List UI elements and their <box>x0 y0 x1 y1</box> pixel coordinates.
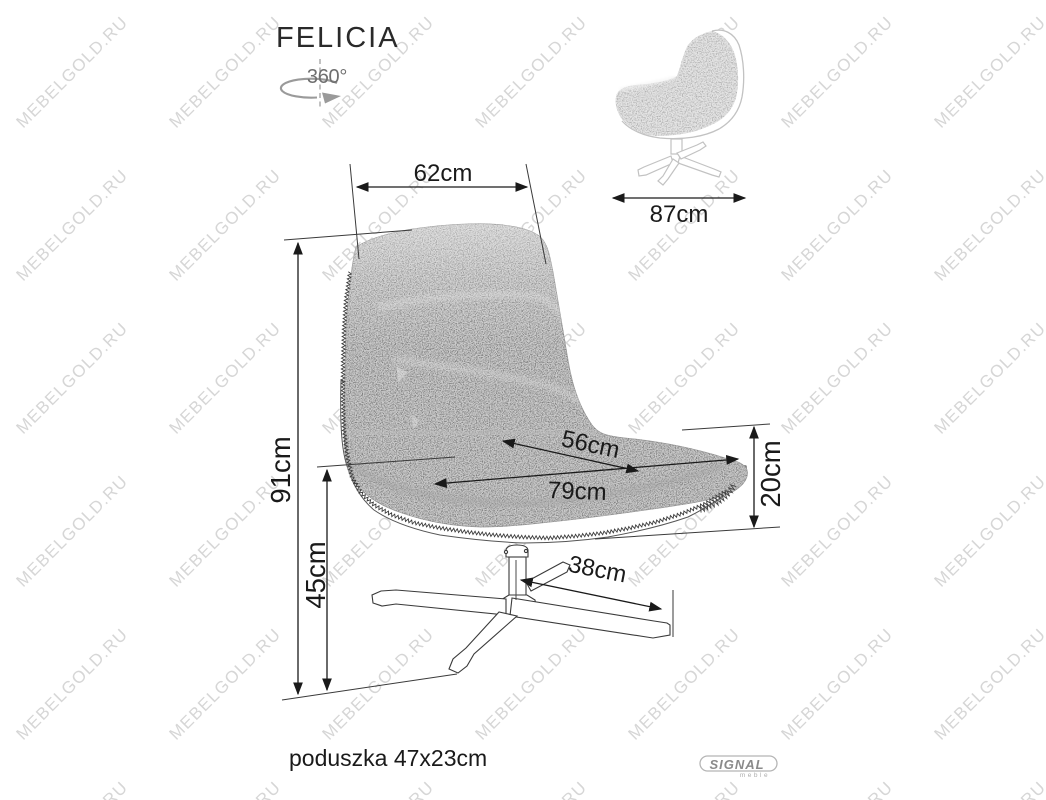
svg-text:79cm: 79cm <box>547 477 607 506</box>
svg-text:MEBELGOLD.RU: MEBELGOLD.RU <box>931 13 1046 132</box>
svg-text:45cm: 45cm <box>300 541 331 608</box>
svg-text:MEBELGOLD.RU: MEBELGOLD.RU <box>778 625 897 744</box>
svg-text:MEBELGOLD.RU: MEBELGOLD.RU <box>166 319 285 438</box>
svg-text:360°: 360° <box>307 66 347 88</box>
svg-text:MEBELGOLD.RU: MEBELGOLD.RU <box>472 13 591 132</box>
svg-text:MEBELGOLD.RU: MEBELGOLD.RU <box>778 472 897 591</box>
svg-text:MEBELGOLD.RU: MEBELGOLD.RU <box>778 319 897 438</box>
svg-text:meble: meble <box>740 772 770 779</box>
svg-text:MEBELGOLD.RU: MEBELGOLD.RU <box>778 778 897 800</box>
svg-text:MEBELGOLD.RU: MEBELGOLD.RU <box>625 319 744 438</box>
svg-text:MEBELGOLD.RU: MEBELGOLD.RU <box>13 319 132 438</box>
svg-text:MEBELGOLD.RU: MEBELGOLD.RU <box>166 13 285 132</box>
svg-text:38cm: 38cm <box>566 551 629 589</box>
svg-text:MEBELGOLD.RU: MEBELGOLD.RU <box>931 625 1046 744</box>
svg-text:MEBELGOLD.RU: MEBELGOLD.RU <box>778 13 897 132</box>
svg-text:MEBELGOLD.RU: MEBELGOLD.RU <box>931 472 1046 591</box>
svg-text:MEBELGOLD.RU: MEBELGOLD.RU <box>931 166 1046 285</box>
svg-text:91cm: 91cm <box>265 436 296 503</box>
svg-text:62cm: 62cm <box>414 160 473 187</box>
svg-text:MEBELGOLD.RU: MEBELGOLD.RU <box>625 625 744 744</box>
svg-text:MEBELGOLD.RU: MEBELGOLD.RU <box>13 166 132 285</box>
svg-text:FELICIA: FELICIA <box>276 22 400 54</box>
svg-text:MEBELGOLD.RU: MEBELGOLD.RU <box>166 778 285 800</box>
svg-text:MEBELGOLD.RU: MEBELGOLD.RU <box>13 625 132 744</box>
svg-text:MEBELGOLD.RU: MEBELGOLD.RU <box>166 625 285 744</box>
svg-text:MEBELGOLD.RU: MEBELGOLD.RU <box>13 13 132 132</box>
svg-text:MEBELGOLD.RU: MEBELGOLD.RU <box>472 625 591 744</box>
svg-text:MEBELGOLD.RU: MEBELGOLD.RU <box>931 319 1046 438</box>
svg-text:MEBELGOLD.RU: MEBELGOLD.RU <box>778 166 897 285</box>
svg-text:SIGNAL: SIGNAL <box>709 757 764 772</box>
svg-text:MEBELGOLD.RU: MEBELGOLD.RU <box>472 778 591 800</box>
svg-text:poduszka 47x23cm: poduszka 47x23cm <box>289 745 487 771</box>
svg-text:87cm: 87cm <box>650 201 709 228</box>
svg-text:MEBELGOLD.RU: MEBELGOLD.RU <box>13 472 132 591</box>
svg-text:20cm: 20cm <box>755 440 786 507</box>
svg-text:MEBELGOLD.RU: MEBELGOLD.RU <box>319 778 438 800</box>
svg-text:MEBELGOLD.RU: MEBELGOLD.RU <box>166 166 285 285</box>
svg-text:MEBELGOLD.RU: MEBELGOLD.RU <box>625 778 744 800</box>
svg-text:MEBELGOLD.RU: MEBELGOLD.RU <box>319 625 438 744</box>
svg-text:MEBELGOLD.RU: MEBELGOLD.RU <box>931 778 1046 800</box>
svg-text:MEBELGOLD.RU: MEBELGOLD.RU <box>13 778 132 800</box>
